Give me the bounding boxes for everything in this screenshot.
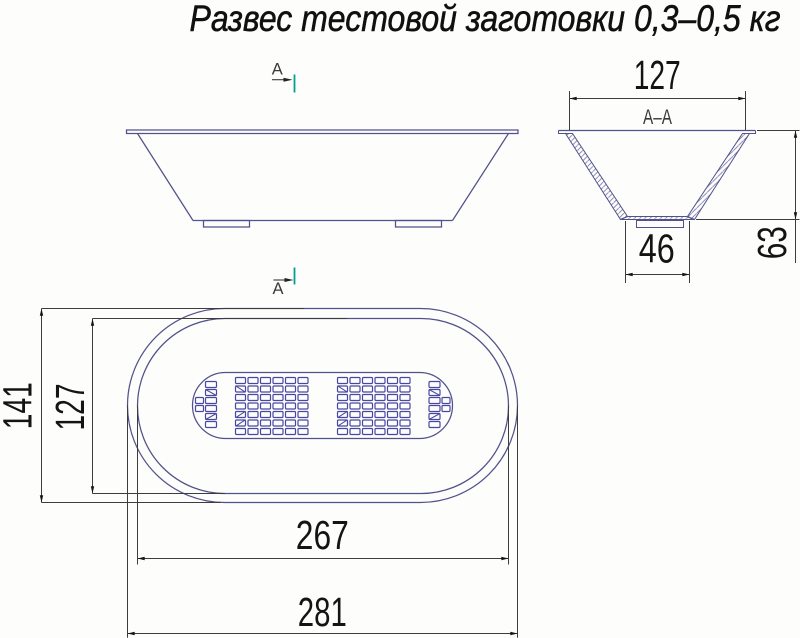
svg-text:127: 127 — [47, 384, 93, 431]
svg-text:46: 46 — [639, 226, 675, 272]
svg-text:63: 63 — [749, 226, 795, 259]
svg-text:127: 127 — [634, 52, 681, 98]
svg-text:A: A — [272, 61, 283, 79]
svg-text:281: 281 — [298, 589, 347, 635]
svg-text:Развес тестовой заготовки 0,3–: Развес тестовой заготовки 0,3–0,5 кг — [190, 0, 781, 39]
svg-text:A–A: A–A — [643, 106, 672, 129]
svg-text:A: A — [272, 280, 283, 298]
svg-text:267: 267 — [296, 512, 349, 558]
svg-text:141: 141 — [0, 382, 41, 429]
